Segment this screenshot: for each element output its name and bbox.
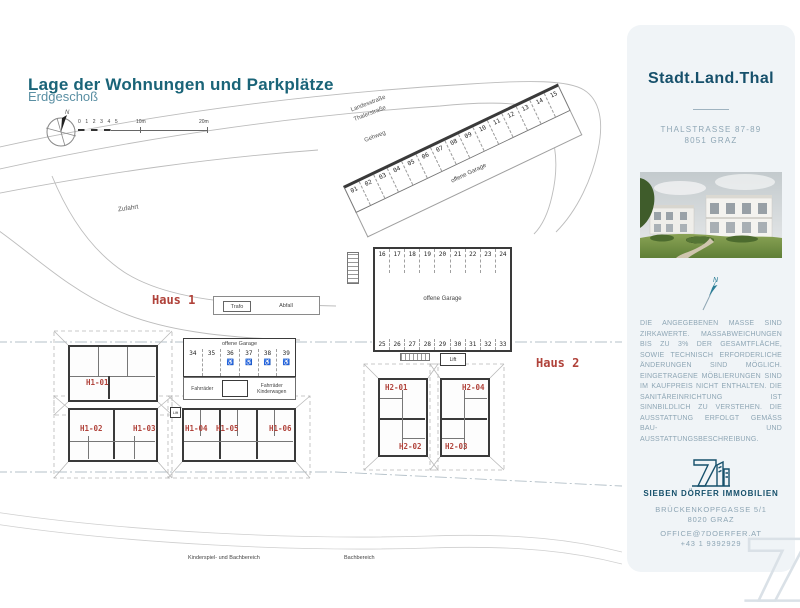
- interior-wall: [256, 410, 258, 459]
- parking-stall-number: 28: [420, 339, 434, 350]
- service-area: Trafo Abfall: [213, 296, 320, 315]
- bike-right-label: Fahrräder Kinderwagen: [249, 378, 295, 399]
- parking-stall: 29: [435, 339, 450, 350]
- building-render-image: [640, 172, 782, 258]
- parking-stall-number: 30: [451, 339, 465, 350]
- parking-stall-number: 26: [390, 339, 404, 350]
- company-address-line2: 8020 GRAZ: [688, 515, 735, 524]
- scale-bar-segments: [78, 129, 111, 131]
- scale-10m-label: 10m: [136, 119, 146, 125]
- parking-stall-number: 24: [496, 249, 510, 260]
- parking-stall: 21: [451, 249, 466, 273]
- scale-20m-label: 20m: [199, 119, 209, 125]
- page-subtitle: Erdgeschoß: [28, 89, 98, 104]
- interior-wall: [88, 436, 89, 459]
- interior-wall: [464, 398, 487, 399]
- unit-label-h1-01: H1-01: [86, 378, 109, 387]
- parking-stall-number: 31: [466, 339, 480, 350]
- interior-wall: [98, 347, 99, 377]
- brochure-page: { "header": { "title": "Lage der Wohnung…: [0, 0, 800, 600]
- unit-label-h1-04: H1-04: [185, 424, 208, 433]
- haus1-garage-stalls: 343536♿37♿38♿39♿: [184, 349, 295, 376]
- unit-label-h1-05: H1-05: [216, 424, 239, 433]
- unit-label-h2-02: H2-02: [399, 442, 422, 451]
- parking-stall-number: 22: [466, 249, 480, 260]
- parking-stall: 16: [375, 249, 390, 273]
- trafo-label: Trafo: [231, 304, 244, 310]
- disclaimer-text: DIE ANGEGEBENEN MASSE SIND ZIRKAWERTE. M…: [640, 319, 782, 445]
- project-address: THALSTRASSE 87-89 8051 GRAZ: [627, 124, 795, 146]
- interior-wall: [464, 390, 465, 450]
- building-haus1-south-west: [68, 408, 158, 462]
- project-address-line2: 8051 GRAZ: [684, 136, 737, 145]
- unit-label-h1-03: H1-03: [133, 424, 156, 433]
- interior-wall: [402, 438, 425, 439]
- render-illustration: [640, 172, 782, 258]
- bike-storage: Fahrräder Fahrräder Kinderwagen: [183, 377, 296, 400]
- building-h1-01: [68, 345, 158, 402]
- company-name: SIEBEN DÖRFER IMMOBILIEN: [627, 489, 795, 498]
- parking-stall: 22: [466, 249, 481, 273]
- interior-wall: [127, 347, 128, 377]
- interior-wall: [70, 441, 155, 442]
- parking-stall-number: 25: [375, 339, 389, 350]
- scale-bar-line: [111, 130, 207, 131]
- parking-stall-number: 21: [451, 249, 465, 260]
- wheelchair-icon: ♿: [240, 359, 258, 366]
- parking-stall-number: 18: [405, 249, 419, 260]
- central-lift-box: Lift: [440, 353, 466, 366]
- interior-wall: [184, 441, 293, 442]
- wheelchair-icon: ♿: [221, 359, 239, 366]
- central-garage: 161718192021222324 offene Garage 2526272…: [373, 247, 512, 352]
- parking-stall-number: 17: [390, 249, 404, 260]
- parking-stall-number: 23: [481, 249, 495, 260]
- haus1-lift-label: Lift: [173, 410, 178, 415]
- interior-wall: [70, 376, 155, 377]
- stairs-icon-left: [347, 252, 359, 284]
- scale-bar: 0 1 2 3 4 5 10m 20m: [78, 119, 210, 135]
- wheelchair-icon: ♿: [277, 359, 295, 366]
- parking-stall: 23: [481, 249, 496, 273]
- parking-stall: 20: [435, 249, 450, 273]
- abfall-label: Abfall: [264, 303, 308, 309]
- wheelchair-icon: ♿: [259, 359, 277, 366]
- interior-wall: [134, 436, 135, 459]
- stairs-icon: [400, 353, 430, 361]
- interior-wall: [380, 398, 402, 399]
- unit-label-h1-02: H1-02: [80, 424, 103, 433]
- haus1-garage: offene Garage 343536♿37♿38♿39♿: [183, 338, 296, 377]
- compass-n-label: N: [65, 110, 70, 116]
- parking-stall-number: 32: [481, 339, 495, 350]
- parking-stall-number: 19: [420, 249, 434, 260]
- haus1-lift-box: Lift: [170, 407, 181, 418]
- area-label-play-stream: Kinderspiel- und Bachbereich: [188, 556, 260, 562]
- parking-stall: 24: [496, 249, 510, 273]
- haus1-garage-label: offene Garage: [184, 341, 295, 347]
- north-n-label: N: [713, 277, 719, 284]
- parking-stall: 19: [420, 249, 435, 273]
- trafo-box: Trafo: [223, 301, 251, 312]
- sidebar-card: Stadt.Land.Thal THALSTRASSE 87-89 8051 G…: [627, 25, 795, 572]
- garage-row-top: 161718192021222324: [375, 249, 510, 273]
- scale-tick-labels: 0 1 2 3 4 5: [78, 119, 119, 125]
- bike-room-box: [222, 380, 248, 397]
- parking-stall: 26: [390, 339, 405, 350]
- scale-end-tick: [207, 127, 208, 133]
- building-haus1-south-east: [182, 408, 296, 462]
- parking-stall: 34: [184, 349, 203, 376]
- interior-wall: [219, 410, 221, 459]
- parking-stall-number: 27: [405, 339, 419, 350]
- company-address-line1: BRÜCKENKOPFGASSE 5/1: [655, 505, 766, 514]
- unit-label-h2-03: H2-03: [445, 442, 468, 451]
- parking-stall: 27: [405, 339, 420, 350]
- parking-strip-label: offene Garage: [450, 163, 487, 185]
- unit-label-h1-06: H1-06: [269, 424, 292, 433]
- parking-stall-number: 15: [545, 87, 562, 101]
- parking-stall-number: 37: [240, 349, 258, 357]
- interior-wall: [402, 390, 403, 450]
- haus2-title: Haus 2: [536, 356, 579, 370]
- parking-stall: 18: [405, 249, 420, 273]
- divider-line: [693, 109, 729, 110]
- parking-stall: 25: [375, 339, 390, 350]
- parking-stall-number: 29: [435, 339, 449, 350]
- parking-stall: 36♿: [221, 349, 240, 376]
- parking-stall-number: 36: [221, 349, 239, 357]
- parking-stall: 33: [496, 339, 510, 350]
- parking-stall: 38♿: [259, 349, 278, 376]
- parking-stall: 39♿: [277, 349, 295, 376]
- company-phone: +43 1 9392929: [681, 539, 742, 548]
- brand-title: Stadt.Land.Thal: [627, 70, 795, 88]
- parking-stall: 35: [203, 349, 222, 376]
- parking-stall-number: 16: [375, 249, 389, 260]
- bike-left-label: Fahrräder: [184, 378, 221, 399]
- unit-label-h2-04: H2-04: [462, 383, 485, 392]
- garage-row-bottom: 252627282930313233: [375, 326, 510, 350]
- parking-stall: 17: [390, 249, 405, 273]
- parking-stall: 32: [481, 339, 496, 350]
- central-lift-label: Lift: [450, 357, 457, 363]
- north-arrow-icon: N: [700, 273, 722, 313]
- parking-stall: 37♿: [240, 349, 259, 376]
- parking-stall-number: 20: [435, 249, 449, 260]
- watermark-logo-icon: [742, 522, 800, 608]
- interior-wall: [442, 438, 464, 439]
- haus1-title: Haus 1: [152, 293, 195, 307]
- project-address-line1: THALSTRASSE 87-89: [661, 125, 762, 134]
- company-logo-icon: [689, 453, 733, 489]
- parking-stall-number: 35: [203, 349, 221, 357]
- parking-stall: 28: [420, 339, 435, 350]
- scale-mid-tick: [140, 127, 141, 133]
- parking-stall-number: 39: [277, 349, 295, 357]
- parking-stall: 31: [466, 339, 481, 350]
- parking-stall-number: 34: [184, 349, 202, 357]
- parking-stall-number: 38: [259, 349, 277, 357]
- parking-stall: 30: [451, 339, 466, 350]
- parking-stall-number: 33: [496, 339, 510, 350]
- unit-label-h2-01: H2-01: [385, 383, 408, 392]
- area-label-stream: Bachbereich: [344, 556, 375, 562]
- bike-right-line2: Kinderwagen: [257, 389, 286, 395]
- interior-wall: [113, 410, 115, 459]
- central-garage-label: offene Garage: [375, 296, 510, 302]
